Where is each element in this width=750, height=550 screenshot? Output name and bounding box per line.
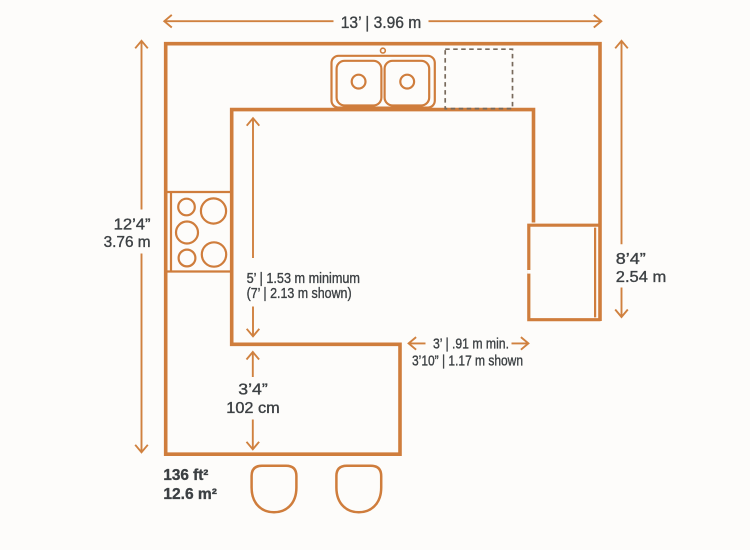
svg-text:102 cm: 102 cm [226, 400, 280, 417]
svg-text:3’ | .91 m min.: 3’ | .91 m min. [433, 336, 509, 352]
svg-text:8’4”: 8’4” [616, 251, 646, 268]
svg-text:3’4”: 3’4” [238, 382, 268, 399]
svg-text:3.76 m: 3.76 m [104, 234, 151, 251]
svg-text:2.54 m: 2.54 m [616, 269, 666, 286]
svg-text:3’10” | 1.17 m shown: 3’10” | 1.17 m shown [412, 353, 523, 369]
svg-text:136 ft²: 136 ft² [163, 467, 208, 484]
svg-text:13’ | 3.96 m: 13’ | 3.96 m [341, 13, 422, 32]
svg-text:(7’ | 2.13 m shown): (7’ | 2.13 m shown) [247, 286, 352, 302]
svg-text:12’4”: 12’4” [114, 217, 151, 234]
svg-text:12.6 m²: 12.6 m² [163, 486, 217, 503]
svg-text:5’ | 1.53 m minimum: 5’ | 1.53 m minimum [247, 271, 360, 287]
